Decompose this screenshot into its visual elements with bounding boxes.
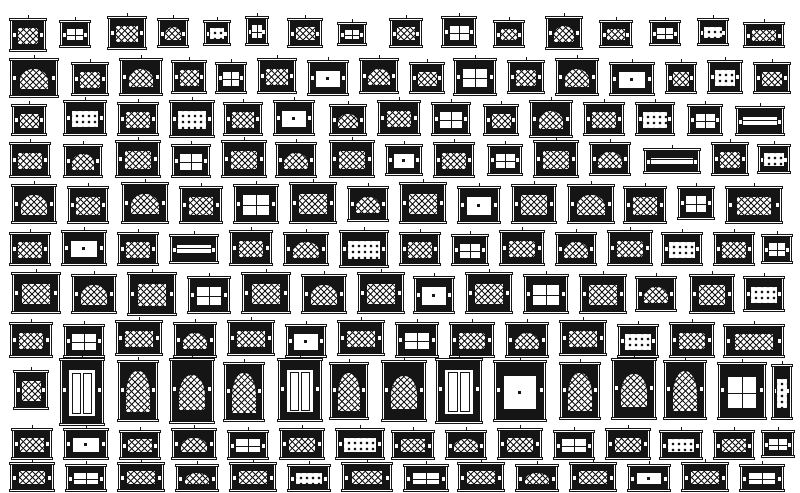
base-plinth <box>605 457 651 460</box>
base-plinth <box>635 309 677 312</box>
ornate-surround <box>172 103 212 135</box>
cad-block <box>458 186 500 224</box>
ornate-surround <box>120 465 162 489</box>
block-opening <box>230 150 258 170</box>
ornate-surround <box>514 187 554 221</box>
block-opening <box>618 71 646 88</box>
base-plinth <box>117 263 159 266</box>
base-plinth <box>287 45 323 48</box>
base-plinth <box>413 311 455 314</box>
ornate-surround <box>532 103 570 135</box>
ornate-surround <box>230 323 272 353</box>
base-plinth <box>579 311 627 314</box>
cad-block <box>568 184 614 224</box>
base-plinth <box>11 311 61 314</box>
ornate-surround <box>638 105 672 133</box>
ornate-surround <box>620 327 656 355</box>
ornate-surround <box>190 279 228 311</box>
ornate-surround <box>340 25 364 43</box>
ornate-surround <box>602 23 630 45</box>
block-opening <box>347 240 380 260</box>
ornate-surround <box>110 19 144 47</box>
base-plinth <box>127 313 177 316</box>
cad-block <box>64 428 108 460</box>
base-plinth <box>497 457 543 460</box>
base-plinth <box>59 45 91 48</box>
cad-block <box>64 324 104 358</box>
block-opening <box>231 111 255 128</box>
base-plinth <box>169 261 219 264</box>
block-opening <box>20 194 48 215</box>
cad-block <box>338 320 384 356</box>
cad-block <box>228 430 268 460</box>
base-plinth <box>707 91 743 94</box>
ornate-surround <box>690 107 720 133</box>
cad-block <box>118 232 158 266</box>
cad-block <box>12 104 46 136</box>
block-opening <box>75 196 100 216</box>
cad-block <box>348 186 388 222</box>
panel-center-dot <box>326 77 329 80</box>
base-plinth <box>157 45 189 48</box>
cad-block <box>10 58 58 98</box>
base-plinth <box>659 457 703 460</box>
base-plinth <box>483 133 519 136</box>
cad-block <box>158 18 188 48</box>
ornate-surround <box>402 185 444 221</box>
ornate-surround <box>436 145 472 175</box>
ornate-surround <box>460 465 502 489</box>
block-opening <box>591 111 616 128</box>
base-plinth <box>385 173 423 176</box>
base-plinth <box>739 489 785 492</box>
ornate-surround <box>130 275 174 313</box>
base-plinth <box>689 311 735 314</box>
panel-center-dot <box>647 477 650 480</box>
base-plinth <box>391 457 435 460</box>
ornate-surround <box>160 21 186 45</box>
cad-block <box>688 104 722 136</box>
mullion-horizontal <box>769 250 785 251</box>
door-leaf-left <box>290 372 300 410</box>
cad-block <box>670 322 714 358</box>
cad-block <box>258 58 296 94</box>
mullion-horizontal <box>405 341 430 342</box>
cad-block <box>120 430 160 460</box>
ornate-surround <box>460 189 498 221</box>
ornate-surround <box>746 25 782 45</box>
base-plinth <box>711 173 749 176</box>
block-opening <box>127 438 152 453</box>
ornate-surround <box>392 21 420 45</box>
block-opening <box>685 195 707 212</box>
cad-block <box>68 186 108 224</box>
block-opening <box>439 111 463 128</box>
ornate-surround <box>496 23 522 45</box>
ornate-surround <box>402 235 438 263</box>
mullion-horizontal <box>460 251 480 252</box>
cad-block <box>690 274 734 314</box>
base-plinth <box>337 353 385 356</box>
ornate-surround <box>536 143 576 175</box>
block-opening <box>417 71 438 87</box>
block-opening <box>441 152 466 171</box>
block-opening <box>19 68 50 89</box>
cad-block <box>12 428 52 460</box>
ornate-surround <box>510 63 542 91</box>
cad-block <box>446 430 486 460</box>
block-opening <box>164 26 182 41</box>
ornate-surround <box>592 145 628 173</box>
block-opening <box>70 240 98 259</box>
block-opening <box>79 71 101 88</box>
cad-block <box>662 232 702 266</box>
base-plinth <box>9 355 53 358</box>
base-plinth <box>65 489 107 492</box>
cad-block <box>120 58 162 96</box>
base-plinth <box>117 133 159 136</box>
block-opening <box>188 196 215 216</box>
cad-block <box>772 364 792 420</box>
block-opening <box>698 284 726 305</box>
cad-blocks-sheet <box>0 0 800 493</box>
block-opening <box>520 194 548 215</box>
ornate-surround <box>438 361 480 421</box>
base-plinth <box>283 263 329 266</box>
base-plinth <box>9 489 55 492</box>
block-opening <box>495 153 516 169</box>
base-plinth <box>169 135 215 138</box>
base-plinth <box>545 47 583 50</box>
ornate-surround <box>182 189 220 221</box>
cad-block <box>454 58 496 96</box>
ornate-surround <box>720 365 764 417</box>
block-opening <box>578 470 607 485</box>
block-opening <box>462 68 489 88</box>
ornate-surround <box>394 433 432 457</box>
block-opening <box>124 330 153 349</box>
cad-block <box>10 18 46 52</box>
block-opening <box>21 380 42 401</box>
ornate-surround <box>12 465 52 489</box>
block-opening <box>500 28 518 42</box>
cad-block <box>628 464 670 492</box>
block-opening <box>17 152 42 171</box>
cad-block <box>584 102 624 136</box>
cad-block <box>392 430 434 460</box>
base-plinth <box>273 133 315 136</box>
base-plinth <box>223 133 263 136</box>
cad-block <box>276 142 316 178</box>
block-opening <box>393 153 415 169</box>
ornate-surround <box>62 361 102 423</box>
ornate-surround <box>120 235 156 263</box>
block-opening <box>66 28 84 42</box>
mullion-horizontal <box>450 33 469 34</box>
cad-block <box>386 144 422 176</box>
block-opening <box>125 111 150 128</box>
cad-block <box>10 232 50 266</box>
ornate-surround <box>612 65 652 93</box>
base-plinth <box>487 173 523 176</box>
ornate-surround <box>558 61 596 93</box>
block-opening <box>251 24 264 39</box>
cad-block <box>60 20 90 48</box>
cad-block <box>72 274 116 314</box>
ornate-surround <box>692 277 732 311</box>
ornate-surround <box>310 63 346 93</box>
cad-block <box>682 462 728 492</box>
block-opening <box>265 68 289 87</box>
block-opening <box>624 333 651 350</box>
block-opening <box>453 438 478 453</box>
block-opening <box>508 240 536 259</box>
block-opening <box>668 241 695 258</box>
cad-block <box>452 234 488 266</box>
base-plinth <box>187 311 231 314</box>
ornate-surround <box>224 143 264 175</box>
cad-block <box>606 428 650 460</box>
block-opening <box>344 29 361 40</box>
ornate-surround <box>448 433 484 457</box>
base-plinth <box>743 45 785 48</box>
mullion-horizontal <box>657 34 673 35</box>
cad-block <box>500 230 544 266</box>
block-opening <box>21 283 52 305</box>
ornate-surround <box>332 143 372 175</box>
cad-block <box>524 274 568 314</box>
ornate-surround <box>380 103 418 133</box>
base-plinth <box>329 175 375 178</box>
cad-block <box>560 362 600 420</box>
block-opening <box>614 437 642 453</box>
base-plinth <box>329 417 369 420</box>
cad-block <box>644 148 700 174</box>
base-plinth <box>171 175 211 178</box>
block-opening <box>351 470 383 485</box>
ornate-surround <box>518 467 556 489</box>
ornate-surround <box>14 107 44 133</box>
base-plinth <box>697 43 729 46</box>
base-plinth <box>583 133 625 136</box>
ornate-surround <box>756 65 788 91</box>
block-opening <box>310 284 338 305</box>
base-plinth <box>523 311 569 314</box>
base-plinth <box>669 355 715 358</box>
cad-block <box>714 430 754 460</box>
base-plinth <box>559 353 607 356</box>
block-opening <box>338 150 366 170</box>
base-plinth <box>493 45 525 48</box>
ornate-surround <box>556 433 592 457</box>
block-opening <box>298 193 327 215</box>
mullion-horizontal <box>252 32 263 33</box>
block-opening <box>458 332 486 351</box>
base-plinth <box>433 175 475 178</box>
ornate-surround <box>120 105 156 133</box>
mullion-horizontal <box>345 35 360 36</box>
block-opening <box>678 332 706 351</box>
base-plinth <box>337 43 367 46</box>
panel-center-dot <box>82 247 85 250</box>
door-leaf-left <box>448 372 458 412</box>
cad-block <box>382 360 426 422</box>
base-plinth <box>399 221 447 224</box>
ornate-surround <box>340 323 382 353</box>
block-opening <box>124 150 152 170</box>
base-plinth <box>71 93 109 96</box>
block-opening <box>459 243 481 259</box>
cad-block <box>414 276 454 314</box>
block-opening <box>18 470 46 485</box>
base-plinth <box>623 221 667 224</box>
cad-block <box>498 428 542 460</box>
ornate-surround <box>122 433 158 457</box>
block-opening <box>176 244 213 255</box>
ornate-surround <box>172 361 212 421</box>
base-plinth <box>63 175 103 178</box>
base-plinth <box>227 353 275 356</box>
base-plinth <box>505 355 549 358</box>
ornate-surround <box>570 187 612 221</box>
block-opening <box>337 113 359 129</box>
block-opening <box>727 376 758 408</box>
cad-block <box>288 464 330 492</box>
door-leaf-right <box>83 373 93 414</box>
ornate-surround <box>388 147 420 173</box>
cad-block <box>758 144 790 174</box>
mullion-horizontal <box>74 479 97 480</box>
cad-block <box>664 360 706 420</box>
cad-block <box>216 62 246 94</box>
ornate-surround <box>638 279 674 309</box>
base-plinth <box>713 263 755 266</box>
block-opening <box>532 284 560 305</box>
block-opening <box>763 152 784 167</box>
base-plinth <box>341 489 393 492</box>
ornate-surround <box>332 107 364 133</box>
base-plinth <box>115 353 163 356</box>
ornate-surround <box>172 237 216 261</box>
ornate-surround <box>12 21 44 49</box>
ornate-surround <box>716 433 752 457</box>
base-plinth <box>357 311 405 314</box>
base-plinth <box>395 355 439 358</box>
cad-block <box>172 144 210 178</box>
base-plinth <box>257 91 297 94</box>
base-plinth <box>359 91 399 94</box>
base-plinth <box>453 93 497 96</box>
base-plinth <box>117 489 165 492</box>
panel-center-dot <box>402 159 405 162</box>
cad-block <box>590 142 630 176</box>
block-opening <box>137 283 168 307</box>
base-plinth <box>11 221 57 224</box>
cad-block <box>636 276 676 312</box>
block-opening <box>553 25 575 42</box>
mullion-horizontal <box>533 295 559 296</box>
cad-block <box>118 360 158 422</box>
base-plinth <box>277 419 323 422</box>
base-plinth <box>757 171 791 174</box>
ornate-surround <box>178 467 216 489</box>
base-plinth <box>67 221 109 224</box>
base-plinth <box>515 489 559 492</box>
ornate-surround <box>746 279 782 309</box>
block-opening <box>588 284 617 305</box>
cad-block <box>358 272 404 314</box>
ornate-surround <box>62 23 88 45</box>
block-opening <box>444 369 473 415</box>
base-plinth <box>403 489 449 492</box>
ornate-surround <box>260 61 294 91</box>
mullion-horizontal <box>686 204 706 205</box>
cad-block <box>224 102 262 136</box>
base-plinth <box>203 43 231 46</box>
cad-block <box>390 18 422 48</box>
cad-block <box>484 104 518 136</box>
base-plinth <box>435 421 483 424</box>
ornate-surround <box>74 65 106 93</box>
block-opening <box>179 153 203 170</box>
ornate-surround <box>290 467 328 489</box>
base-plinth <box>9 95 59 98</box>
ornate-surround <box>342 233 386 265</box>
cad-block <box>570 462 616 492</box>
block-opening <box>128 68 155 88</box>
block-opening <box>130 193 159 215</box>
ornate-surround <box>502 233 542 263</box>
ornate-surround <box>664 235 700 263</box>
cad-block <box>330 104 366 136</box>
mullion-horizontal <box>463 78 488 79</box>
ornate-surround <box>288 327 324 355</box>
base-plinth <box>71 311 117 314</box>
block-opening <box>768 242 786 257</box>
base-plinth <box>179 221 223 224</box>
panel-center-dot <box>84 443 87 446</box>
cad-block <box>612 358 656 420</box>
cad-block <box>508 60 544 94</box>
cad-block <box>172 60 206 94</box>
base-plinth <box>559 417 601 420</box>
base-plinth <box>347 219 389 222</box>
block-opening <box>179 69 200 86</box>
block-opening <box>576 194 605 215</box>
cad-block <box>762 430 794 458</box>
ornate-surround <box>608 431 648 457</box>
ornate-surround <box>280 361 320 419</box>
block-opening <box>286 369 314 414</box>
base-plinth <box>215 91 247 94</box>
block-opening <box>71 153 95 170</box>
block-opening <box>17 27 39 44</box>
block-opening <box>650 157 694 166</box>
ornate-surround <box>218 65 244 91</box>
base-plinth <box>171 91 207 94</box>
block-opening <box>750 286 777 305</box>
base-plinth <box>175 489 219 492</box>
block-opening <box>17 241 42 258</box>
block-opening <box>642 111 668 128</box>
block-opening <box>776 378 788 409</box>
mullion-horizontal <box>562 446 585 447</box>
ornate-surround <box>282 431 322 457</box>
ornate-surround <box>714 145 746 173</box>
block-opening <box>672 370 699 412</box>
ornate-surround <box>500 431 540 457</box>
base-plinth <box>9 49 47 52</box>
